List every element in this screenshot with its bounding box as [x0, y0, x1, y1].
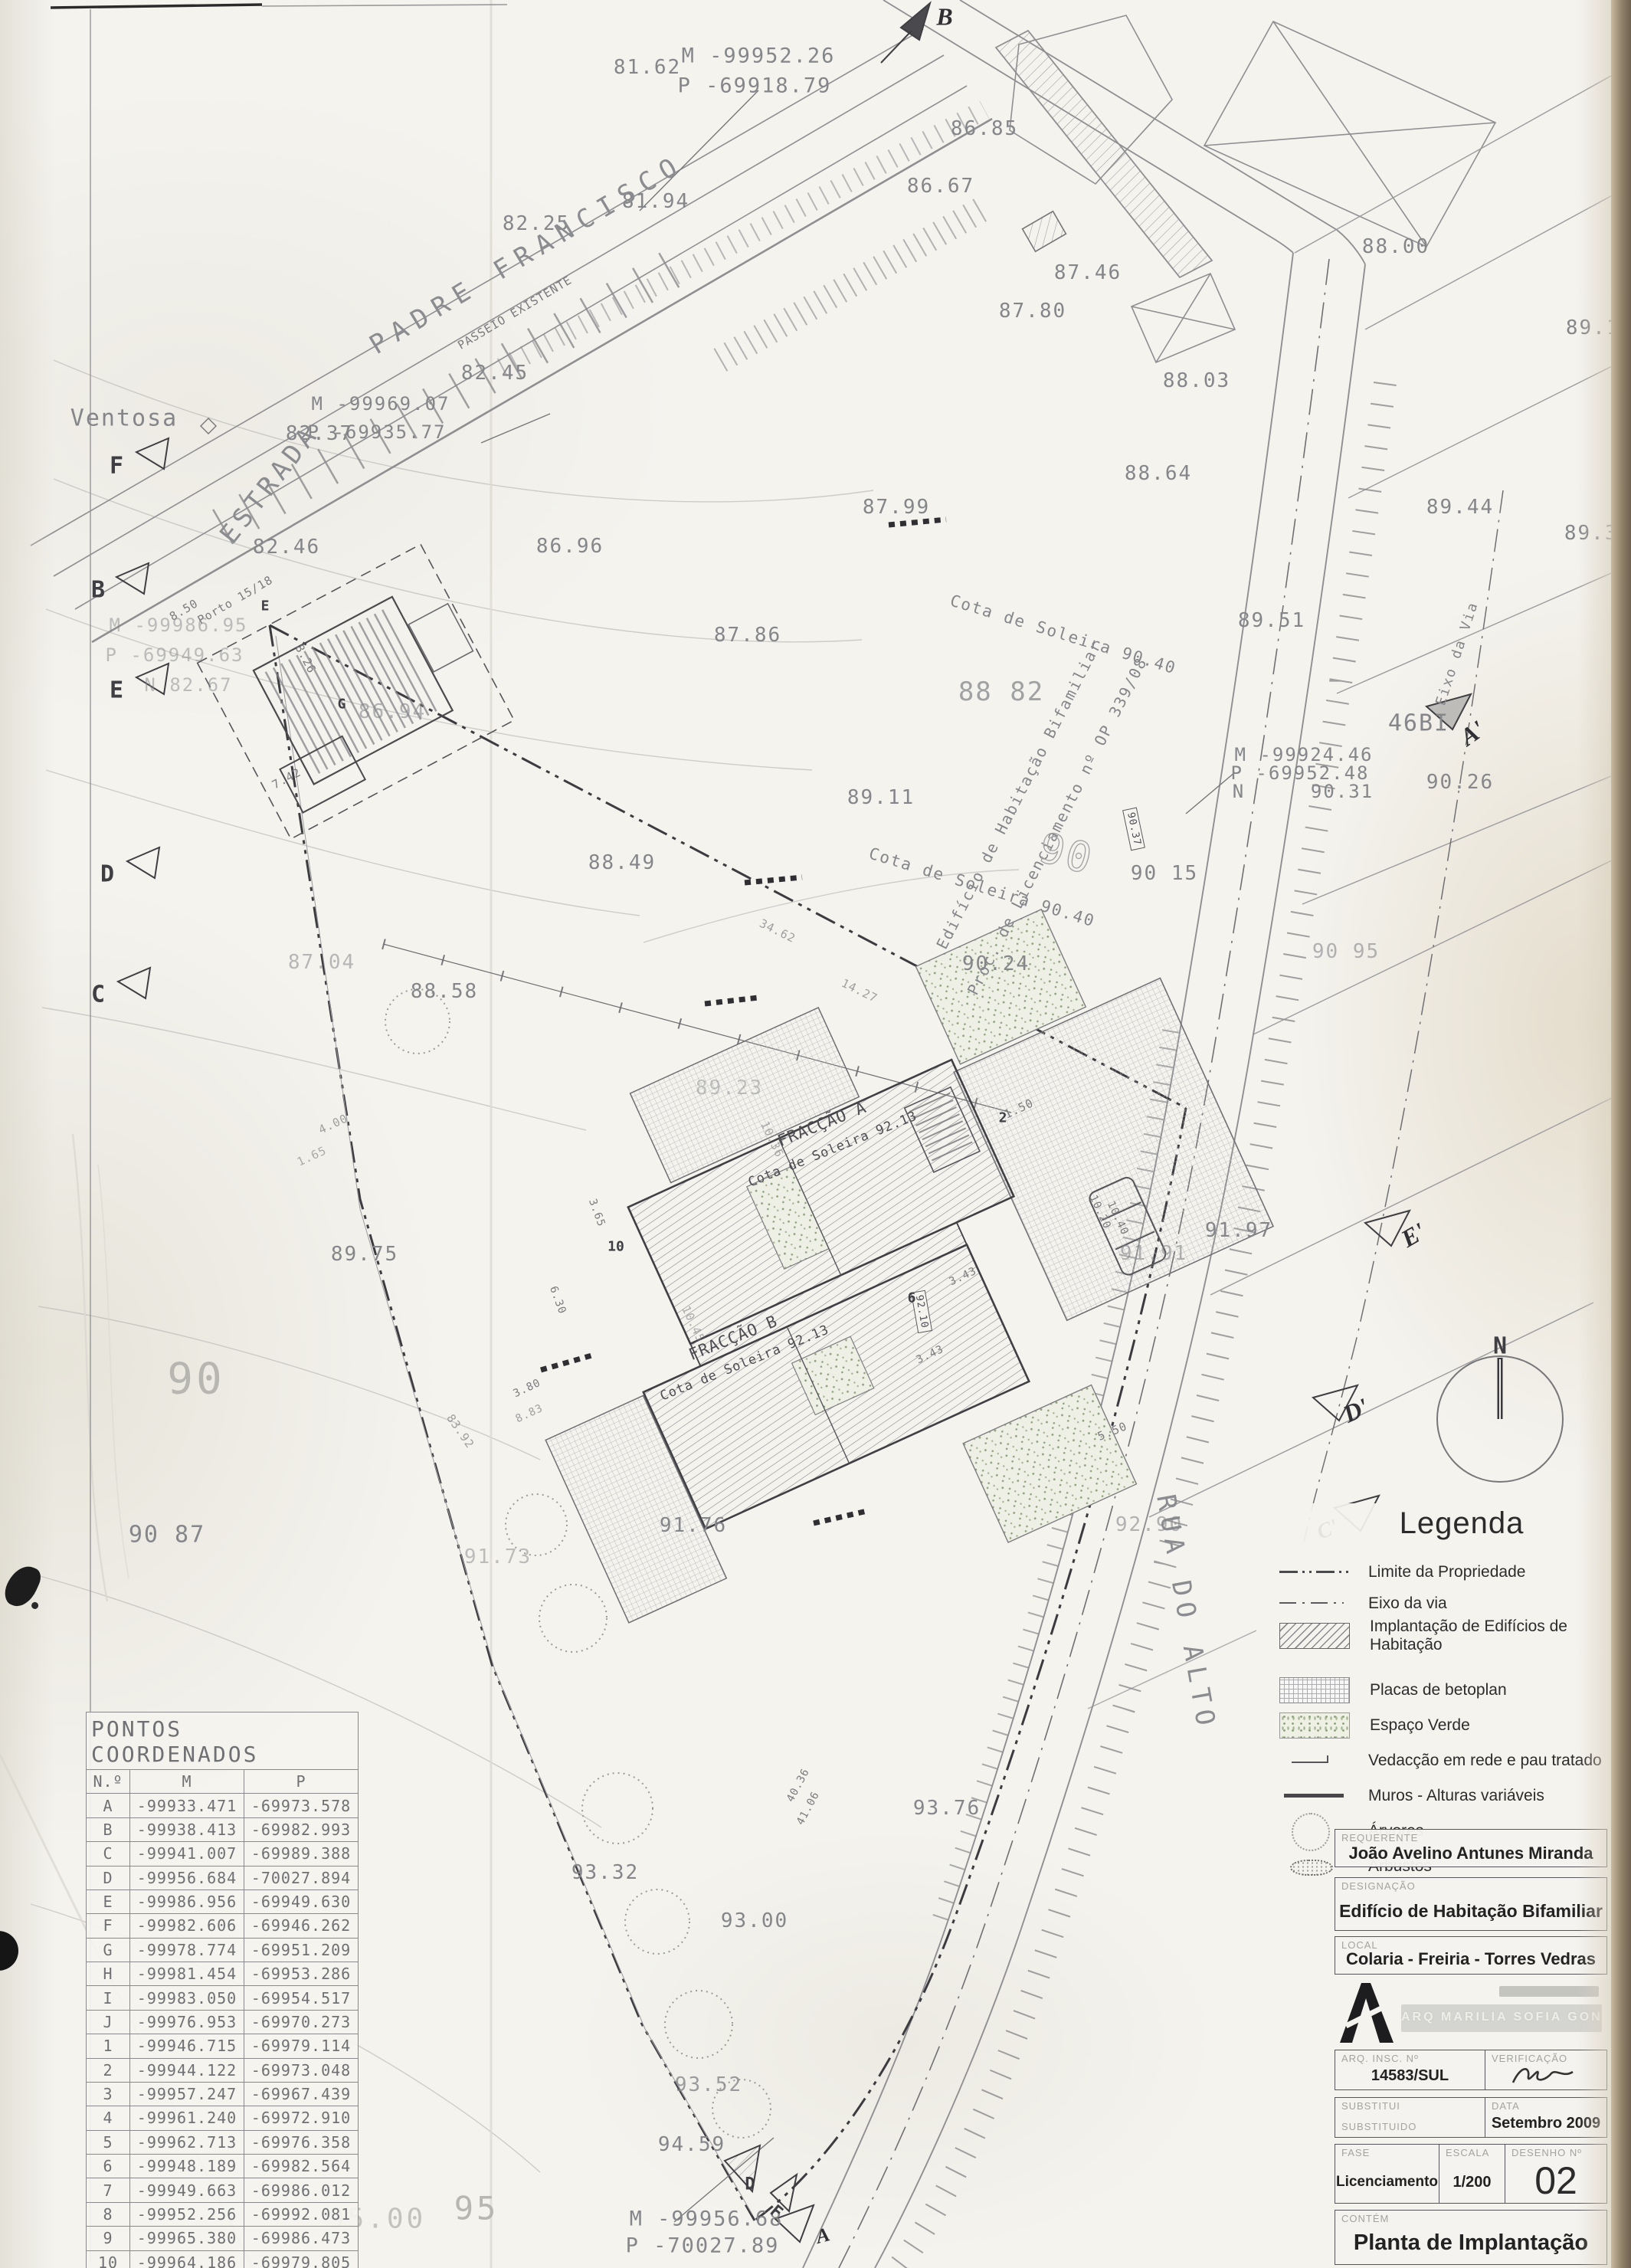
plan-label: 90.31: [1311, 781, 1374, 802]
plan-label: 3.43: [948, 1265, 979, 1288]
table-cell: -99949.663: [130, 2178, 244, 2202]
table-row: 2-99944.122-69973.048: [87, 2058, 359, 2082]
table-row: B-99938.413-69982.993: [87, 1817, 359, 1841]
fase-label: FASE: [1341, 2147, 1370, 2158]
table-cell: -99982.606: [130, 1914, 244, 1938]
arq-value: 14583/SUL: [1335, 2067, 1485, 2085]
plan-label: 14.27: [840, 976, 880, 1005]
plan-label: 89.44: [1426, 496, 1494, 519]
plan-label: 7.42: [270, 765, 303, 792]
table-cell: -99983.050: [130, 1986, 244, 2010]
table-cell: 10: [87, 2250, 130, 2268]
plan-label: 3.80: [512, 1377, 543, 1400]
plan-label: 1.65: [295, 1143, 329, 1168]
table-cell: -69954.517: [244, 1986, 359, 2010]
table-row: A-99933.471-69973.578: [87, 1794, 359, 1817]
designacao-value: Edifício de Habitação Bifamiliar: [1335, 1901, 1606, 1922]
table-cell: -99957.247: [130, 2082, 244, 2106]
table-cell: D: [87, 1866, 130, 1889]
title-block: REQUERENTE João Avelino Antunes Miranda …: [1335, 1829, 1609, 2266]
table-cell: -69972.910: [244, 2106, 359, 2130]
legend-item: Placas de betoplan: [1266, 1673, 1623, 1708]
plan-label: 90.37: [1122, 808, 1145, 851]
table-cell: -69982.993: [244, 1817, 359, 1841]
plan-label: P -69918.79: [678, 74, 832, 98]
table-cell: 7: [87, 2178, 130, 2202]
contem-label: CONTÉM: [1341, 2213, 1389, 2224]
table-cell: -99944.122: [130, 2058, 244, 2082]
table-cell: -69989.388: [244, 1842, 359, 1866]
table-cell: -99965.380: [130, 2227, 244, 2250]
points-table-grid: N.ºMPA-99933.471-69973.578B-99938.413-69…: [86, 1769, 359, 2268]
plan-label: B: [91, 577, 105, 604]
plan-label: P -70027.89: [626, 2234, 780, 2258]
plan-label: N: [1493, 1333, 1507, 1360]
table-cell: 2: [87, 2058, 130, 2082]
plan-label: 94.59: [658, 2133, 725, 2156]
plan-label: 93.52: [675, 2073, 742, 2096]
plan-label: 2: [999, 1110, 1007, 1126]
table-cell: -99964.186: [130, 2250, 244, 2268]
table-cell: 4: [87, 2106, 130, 2130]
plan-label: 89.23: [696, 1077, 763, 1100]
plan-label: 88.00: [1362, 235, 1430, 258]
table-row: J-99976.953-69970.273: [87, 2010, 359, 2034]
scanned-site-plan-page: 81.62M -99952.26P -69918.7986.8586.6787.…: [0, 0, 1631, 2268]
table-row: 1-99946.715-69979.114: [87, 2034, 359, 2058]
plan-label: M -99952.26: [682, 44, 836, 68]
plan-label: 6.30: [547, 1285, 568, 1316]
plan-label: 10: [608, 1239, 624, 1255]
plan-label: 34.62: [758, 916, 798, 946]
plan-label: Ventosa: [70, 405, 178, 432]
escala-value: 1/200: [1439, 2174, 1505, 2191]
table-cell: E: [87, 1889, 130, 1913]
plan-label: E': [1397, 1217, 1431, 1253]
plan-label: E: [261, 598, 270, 615]
table-row: D-99956.684-70027.894: [87, 1866, 359, 1889]
fase-escala-desenho-row: FASE Licenciamento ESCALA 1/200 DESENHO …: [1335, 2144, 1607, 2204]
table-row: 4-99961.240-69972.910: [87, 2106, 359, 2130]
plan-label: 89.75: [331, 1243, 398, 1266]
plan-label: 87.04: [288, 951, 355, 974]
arq-cell: ARQ. INSC. Nº 14583/SUL: [1335, 2050, 1485, 2089]
table-cell: -99941.007: [130, 1842, 244, 1866]
plan-label: A: [814, 2223, 833, 2248]
plan-label: 86.85: [951, 117, 1018, 140]
plan-label: 90 15: [1131, 862, 1198, 885]
table-cell: -99933.471: [130, 1794, 244, 1817]
table-cell: -99981.454: [130, 1962, 244, 1986]
stamp-strip: ARQ MARILIA SOFIA GONÇALVES COELHO: [1401, 2004, 1602, 2032]
escala-label: ESCALA: [1446, 2147, 1489, 2158]
table-row: 5-99962.713-69976.358: [87, 2130, 359, 2154]
swatch-grid-icon: [1279, 1677, 1350, 1703]
architect-logo-icon: [1338, 1981, 1395, 2044]
designacao-box: DESIGNAÇÃO Edifício de Habitação Bifamil…: [1335, 1877, 1607, 1931]
plan-label: 87.80: [999, 300, 1066, 323]
plan-label: C: [91, 982, 105, 1008]
plan-label: 88 82: [958, 677, 1044, 707]
plan-label: 4.00: [316, 1111, 350, 1136]
plan-label: 82.45: [461, 362, 529, 385]
substitui-label: SUBSTITUI: [1341, 2100, 1400, 2112]
table-cell: -70027.894: [244, 1866, 359, 1889]
plan-label: D: [745, 2175, 755, 2194]
coordinate-points-table: PONTOS COORDENADOS N.ºMPA-99933.471-6997…: [86, 1712, 359, 2268]
plan-label: B: [936, 3, 952, 31]
plan-label: 93.00: [721, 1909, 788, 1932]
table-cell: -69986.473: [244, 2227, 359, 2250]
legend-item: Muros - Alturas variáveis: [1266, 1778, 1623, 1814]
plan-label: 46BI: [1388, 710, 1449, 737]
legend-label: Placas de betoplan: [1370, 1681, 1507, 1699]
table-cell: -69967.439: [244, 2082, 359, 2106]
scan-shadow-right: [1577, 0, 1611, 2268]
requerente-value: João Avelino Antunes Miranda: [1335, 1844, 1606, 1863]
table-cell: 3: [87, 2082, 130, 2106]
legend-item: Espaço Verde: [1266, 1708, 1623, 1743]
table-header-cell: P: [244, 1770, 359, 1794]
plan-label: G: [338, 696, 346, 713]
table-header-row: N.ºMP: [87, 1770, 359, 1794]
stamp-text: ARQ MARILIA SOFIA GONÇALVES COELHO: [1401, 2011, 1602, 2024]
legend-item: Implantação de Edifícios de Habitação: [1266, 1617, 1623, 1654]
fase-value: Licenciamento: [1335, 2174, 1439, 2191]
arq-verificacao-row: ARQ. INSC. Nº 14583/SUL VERIFICAÇÃO: [1335, 2050, 1607, 2090]
data-label: DATA: [1492, 2100, 1520, 2112]
plan-label: 90: [1034, 823, 1099, 883]
table-cell: 8: [87, 2202, 130, 2226]
plan-label: 88.03: [1163, 369, 1230, 392]
plan-label: N: [1233, 781, 1245, 802]
table-cell: -69976.358: [244, 2130, 359, 2154]
designacao-label: DESIGNAÇÃO: [1341, 1880, 1416, 1892]
plan-label: 86.67: [907, 175, 974, 198]
substituido-label: SUBSTITUIDO: [1341, 2121, 1416, 2132]
table-cell: H: [87, 1962, 130, 1986]
table-cell: -99986.956: [130, 1889, 244, 1913]
plan-label: 91.76: [660, 1514, 727, 1537]
line-thick-icon: [1279, 1784, 1348, 1808]
plan-label: 88.49: [588, 851, 656, 874]
plan-label: E: [110, 677, 123, 704]
line-dashdotdot-icon: [1279, 1560, 1348, 1585]
scan-shading-left: [0, 0, 55, 2268]
plan-label: 10.45: [679, 1303, 708, 1344]
plan-label: M -99956.68: [630, 2207, 784, 2231]
table-row: G-99978.774-69951.209: [87, 1938, 359, 1962]
plan-label: F: [110, 453, 123, 480]
plan-label: 91.97: [1205, 1219, 1272, 1242]
plan-label: 90 87: [129, 1522, 205, 1549]
legend-label: Limite da Propriedade: [1368, 1563, 1525, 1581]
table-cell: -69946.262: [244, 1914, 359, 1938]
table-cell: -69982.564: [244, 2155, 359, 2178]
table-cell: G: [87, 1938, 130, 1962]
table-cell: C: [87, 1842, 130, 1866]
escala-cell: ESCALA 1/200: [1439, 2145, 1505, 2203]
table-cell: -99956.684: [130, 1866, 244, 1889]
legend-item: Limite da Propriedade: [1266, 1555, 1623, 1590]
substitui-data-row: SUBSTITUI SUBSTITUIDO DATA Setembro 2009: [1335, 2097, 1607, 2138]
scan-edge-strip: [1611, 0, 1631, 2268]
requerente-box: REQUERENTE João Avelino Antunes Miranda: [1335, 1829, 1607, 1867]
plan-label: 87.86: [714, 624, 781, 647]
local-box: LOCAL Colaria - Freiria - Torres Vedras: [1335, 1936, 1607, 1975]
table-cell: A: [87, 1794, 130, 1817]
table-header-cell: M: [130, 1770, 244, 1794]
plan-label: 8.83: [514, 1402, 545, 1425]
table-cell: -99976.953: [130, 2010, 244, 2034]
contem-value: Planta de Implantação: [1335, 2230, 1606, 2256]
symbol-fence-icon: [1279, 1749, 1348, 1773]
plan-label: 89.11: [847, 786, 915, 809]
table-row: 6-99948.189-69982.564: [87, 2155, 359, 2178]
plan-label: N 82.67: [144, 674, 232, 696]
table-cell: -69949.630: [244, 1889, 359, 1913]
plan-label: D: [100, 861, 114, 888]
legend-label: Espaço Verde: [1370, 1716, 1470, 1735]
table-cell: -69979.805: [244, 2250, 359, 2268]
plan-label: 95: [454, 2190, 499, 2227]
table-cell: -69973.048: [244, 2058, 359, 2082]
table-cell: 6: [87, 2155, 130, 2178]
plan-label: 90: [167, 1355, 224, 1404]
table-row: 9-99965.380-69986.473: [87, 2227, 359, 2250]
table-cell: -69953.286: [244, 1962, 359, 1986]
desenho-label: DESENHO Nº: [1511, 2147, 1582, 2158]
table-row: 3-99957.247-69967.439: [87, 2082, 359, 2106]
plan-label: 5.50: [1096, 1419, 1129, 1444]
table-cell: J: [87, 2010, 130, 2034]
architect-stamp: ARQ MARILIA SOFIA GONÇALVES COELHO: [1335, 1981, 1607, 2046]
table-cell: -69951.209: [244, 1938, 359, 1962]
plan-label: 88.58: [411, 980, 478, 1003]
table-row: F-99982.606-69946.262: [87, 1914, 359, 1938]
plan-label: 83.92: [444, 1411, 477, 1450]
substitui-cell: SUBSTITUI SUBSTITUIDO: [1335, 2098, 1485, 2137]
plan-label: 82.46: [253, 536, 320, 559]
table-cell: -69979.114: [244, 2034, 359, 2058]
table-cell: B: [87, 1817, 130, 1841]
legend-item: Eixo da via: [1266, 1590, 1623, 1617]
table-cell: I: [87, 1986, 130, 2010]
plan-label: 6: [908, 1290, 916, 1306]
plan-label: 90 95: [1312, 940, 1380, 963]
plan-label: 93.76: [913, 1797, 981, 1820]
line-dashdot-icon: [1279, 1591, 1348, 1616]
table-row: 7-99949.663-69986.012: [87, 2178, 359, 2202]
table-row: 10-99964.186-69979.805: [87, 2250, 359, 2268]
table-cell: 5: [87, 2130, 130, 2154]
table-cell: F: [87, 1914, 130, 1938]
table-row: 8-99952.256-69992.081: [87, 2202, 359, 2226]
table-title: PONTOS COORDENADOS: [86, 1712, 359, 1769]
table-cell: -99961.240: [130, 2106, 244, 2130]
plan-label: D': [1339, 1392, 1374, 1428]
plan-label: 86.94: [359, 700, 426, 723]
plan-label: 90.24: [962, 952, 1030, 975]
plan-label: A': [1455, 715, 1490, 752]
plan-label: 81.62: [614, 56, 681, 79]
table-cell: -69973.578: [244, 1794, 359, 1817]
plan-label: 92.90: [1115, 1513, 1183, 1536]
legend-item: Vedacção em rede e pau tratado: [1266, 1743, 1623, 1778]
table-cell: -99946.715: [130, 2034, 244, 2058]
table-cell: 1: [87, 2034, 130, 2058]
legend-label: Eixo da via: [1368, 1594, 1447, 1613]
table-cell: -99938.413: [130, 1817, 244, 1841]
plan-label: 88.64: [1125, 462, 1192, 485]
plan-label: ESTRADA: [214, 419, 326, 550]
plan-label: 87.46: [1054, 261, 1122, 284]
swatch-hatch-icon: [1279, 1623, 1350, 1649]
table-cell: -99978.774: [130, 1938, 244, 1962]
plan-label: 91.73: [464, 1545, 532, 1568]
plan-label: M -99986.95: [110, 615, 248, 636]
plan-label: 1.50: [1002, 1096, 1036, 1121]
table-cell: -69970.273: [244, 2010, 359, 2034]
local-value: Colaria - Freiria - Torres Vedras: [1335, 1949, 1606, 1969]
table-cell: -99952.256: [130, 2202, 244, 2226]
table-row: E-99986.956-69949.630: [87, 1889, 359, 1913]
legend-label: Vedacção em rede e pau tratado: [1368, 1752, 1602, 1770]
plan-label: PADRE FRANCISCO: [364, 148, 689, 360]
swatch-stipple-icon: [1279, 1712, 1350, 1739]
table-row: C-99941.007-69989.388: [87, 1842, 359, 1866]
table-cell: -69992.081: [244, 2202, 359, 2226]
plan-label: Eixo da Via: [1433, 600, 1482, 708]
plan-label: 91.91: [1120, 1242, 1187, 1265]
table-cell: -99948.189: [130, 2155, 244, 2178]
table-cell: -69986.012: [244, 2178, 359, 2202]
table-row: H-99981.454-69953.286: [87, 1962, 359, 1986]
table-cell: -99962.713: [130, 2130, 244, 2154]
table-cell: 9: [87, 2227, 130, 2250]
plan-label: 89.51: [1238, 609, 1305, 632]
plan-label: 3.65: [586, 1198, 608, 1229]
legend-label: Muros - Alturas variáveis: [1368, 1787, 1544, 1805]
table-header-cell: N.º: [87, 1770, 130, 1794]
fase-cell: FASE Licenciamento: [1335, 2145, 1439, 2203]
plan-label: 8.26: [293, 642, 319, 676]
plan-label: M -99969.07: [312, 393, 450, 415]
plan-label: 3.43: [915, 1343, 946, 1366]
arq-label: ARQ. INSC. Nº: [1341, 2053, 1419, 2064]
legend-title: Legenda: [1266, 1506, 1623, 1541]
table-row: I-99983.050-69954.517: [87, 1986, 359, 2010]
plan-label: 90.26: [1426, 771, 1494, 794]
plan-label: P -69949.63: [106, 644, 244, 666]
requerente-label: REQUERENTE: [1341, 1832, 1418, 1844]
plan-label: 87.99: [863, 496, 930, 519]
plan-label: 93.32: [572, 1861, 639, 1884]
plan-label: 86.96: [536, 535, 604, 558]
contem-box: CONTÉM Planta de Implantação: [1335, 2210, 1607, 2265]
